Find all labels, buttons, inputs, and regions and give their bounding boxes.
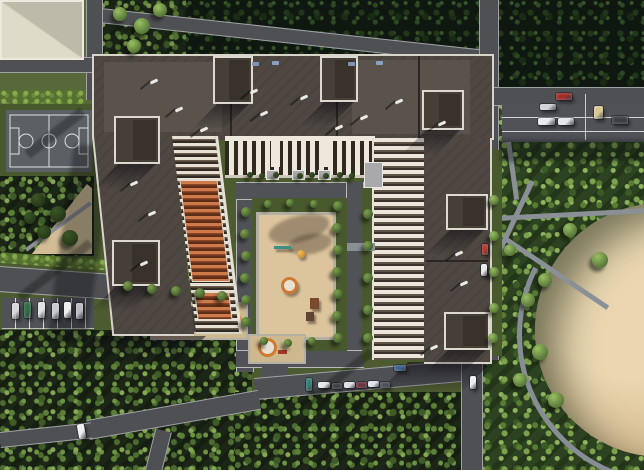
- bulkhead-hatch: [463, 198, 484, 226]
- car: [52, 303, 59, 319]
- tree: [333, 289, 343, 299]
- tree: [548, 392, 564, 408]
- tree: [240, 229, 250, 239]
- car: [344, 382, 355, 388]
- tree: [504, 244, 516, 256]
- tree: [488, 333, 498, 343]
- tree: [332, 267, 342, 277]
- tree: [297, 173, 303, 179]
- car: [558, 118, 574, 125]
- tree: [332, 223, 342, 233]
- car: [38, 302, 45, 318]
- tree: [241, 207, 251, 217]
- tree: [241, 251, 251, 261]
- tree: [50, 206, 66, 222]
- tree: [489, 195, 499, 205]
- storage-box-brown-2: [306, 312, 314, 321]
- facade-white-separator-1: [271, 141, 280, 167]
- tree: [363, 241, 373, 251]
- tree: [363, 333, 373, 343]
- roof-skylight: [272, 61, 279, 65]
- car: [332, 383, 342, 389]
- tree: [333, 333, 343, 343]
- tree: [592, 252, 608, 268]
- car: [538, 118, 555, 125]
- tree: [195, 288, 205, 298]
- tree: [273, 172, 279, 178]
- roof-skylight: [252, 62, 259, 66]
- tree: [309, 172, 315, 178]
- tree: [31, 193, 45, 207]
- tree: [240, 273, 250, 283]
- tree: [247, 172, 253, 178]
- tree: [363, 273, 373, 283]
- tree: [513, 373, 527, 387]
- plaza-south-bench-red: [278, 350, 287, 354]
- tree: [337, 172, 343, 178]
- tree: [538, 273, 552, 287]
- car: [612, 116, 628, 124]
- roof-bulkhead: [114, 116, 160, 164]
- tree: [489, 267, 499, 277]
- tree: [113, 7, 127, 21]
- carousel-ring-orange: [281, 277, 298, 294]
- roof-bulkhead: [112, 240, 160, 286]
- car: [356, 382, 367, 388]
- roof-joint-right-wing: [426, 260, 488, 262]
- tree: [264, 200, 272, 208]
- tree: [333, 201, 343, 211]
- tree: [363, 305, 373, 315]
- tree: [127, 39, 141, 53]
- storage-box-brown-1: [310, 298, 319, 309]
- utility-box-corner: [364, 162, 383, 188]
- tree: [123, 281, 133, 291]
- car: [380, 382, 390, 388]
- car: [76, 303, 83, 319]
- forest-bottom-center: [235, 392, 480, 470]
- tree: [286, 199, 294, 207]
- tree: [171, 286, 181, 296]
- forest-top-right: [490, 0, 644, 92]
- tree: [24, 212, 36, 224]
- car: [481, 264, 487, 276]
- car: [594, 106, 603, 119]
- bulkhead-hatch: [463, 316, 486, 346]
- hedge-top-left: [0, 90, 86, 104]
- tree: [241, 317, 251, 327]
- car: [368, 381, 379, 387]
- tree: [134, 18, 150, 34]
- tree: [563, 223, 577, 237]
- roof-skylight: [348, 62, 355, 66]
- car: [394, 365, 406, 371]
- car: [470, 376, 476, 389]
- tree: [284, 339, 292, 347]
- car: [482, 244, 488, 255]
- roof-bulkhead: [446, 194, 488, 230]
- car: [306, 378, 312, 391]
- car: [318, 382, 330, 388]
- tree: [532, 344, 548, 360]
- tree: [308, 337, 316, 345]
- tree: [323, 173, 329, 179]
- tree: [241, 295, 251, 305]
- tree: [363, 209, 373, 219]
- facade-white-separator-2: [323, 141, 332, 167]
- aerial-site-render: [0, 0, 644, 470]
- school-roof: [0, 0, 84, 60]
- dome-yellow: [297, 250, 305, 258]
- shadow-below-parking-tr: [500, 140, 644, 162]
- tree: [333, 245, 343, 255]
- tree: [310, 200, 318, 208]
- car: [24, 302, 31, 318]
- tree: [489, 303, 499, 313]
- car: [540, 104, 556, 110]
- tree: [147, 284, 157, 294]
- bulkhead-hatch: [133, 120, 156, 160]
- roof-joint-3: [418, 56, 420, 138]
- tree: [153, 3, 167, 17]
- tree: [259, 173, 265, 179]
- tree: [332, 311, 342, 321]
- car: [64, 302, 71, 318]
- tree: [521, 293, 535, 307]
- car: [556, 93, 572, 100]
- tree: [349, 173, 355, 179]
- tree: [489, 231, 499, 241]
- roof-skylight: [376, 61, 383, 65]
- seesaw-teal: [274, 246, 291, 249]
- tree: [37, 225, 51, 239]
- plaza-south: [248, 334, 306, 364]
- roof-bulkhead: [213, 56, 253, 104]
- tree: [62, 230, 78, 246]
- tree: [260, 337, 268, 345]
- roof-bulkhead: [444, 312, 490, 350]
- car: [12, 303, 19, 319]
- parking-divider-line: [585, 94, 586, 140]
- tree: [217, 291, 227, 301]
